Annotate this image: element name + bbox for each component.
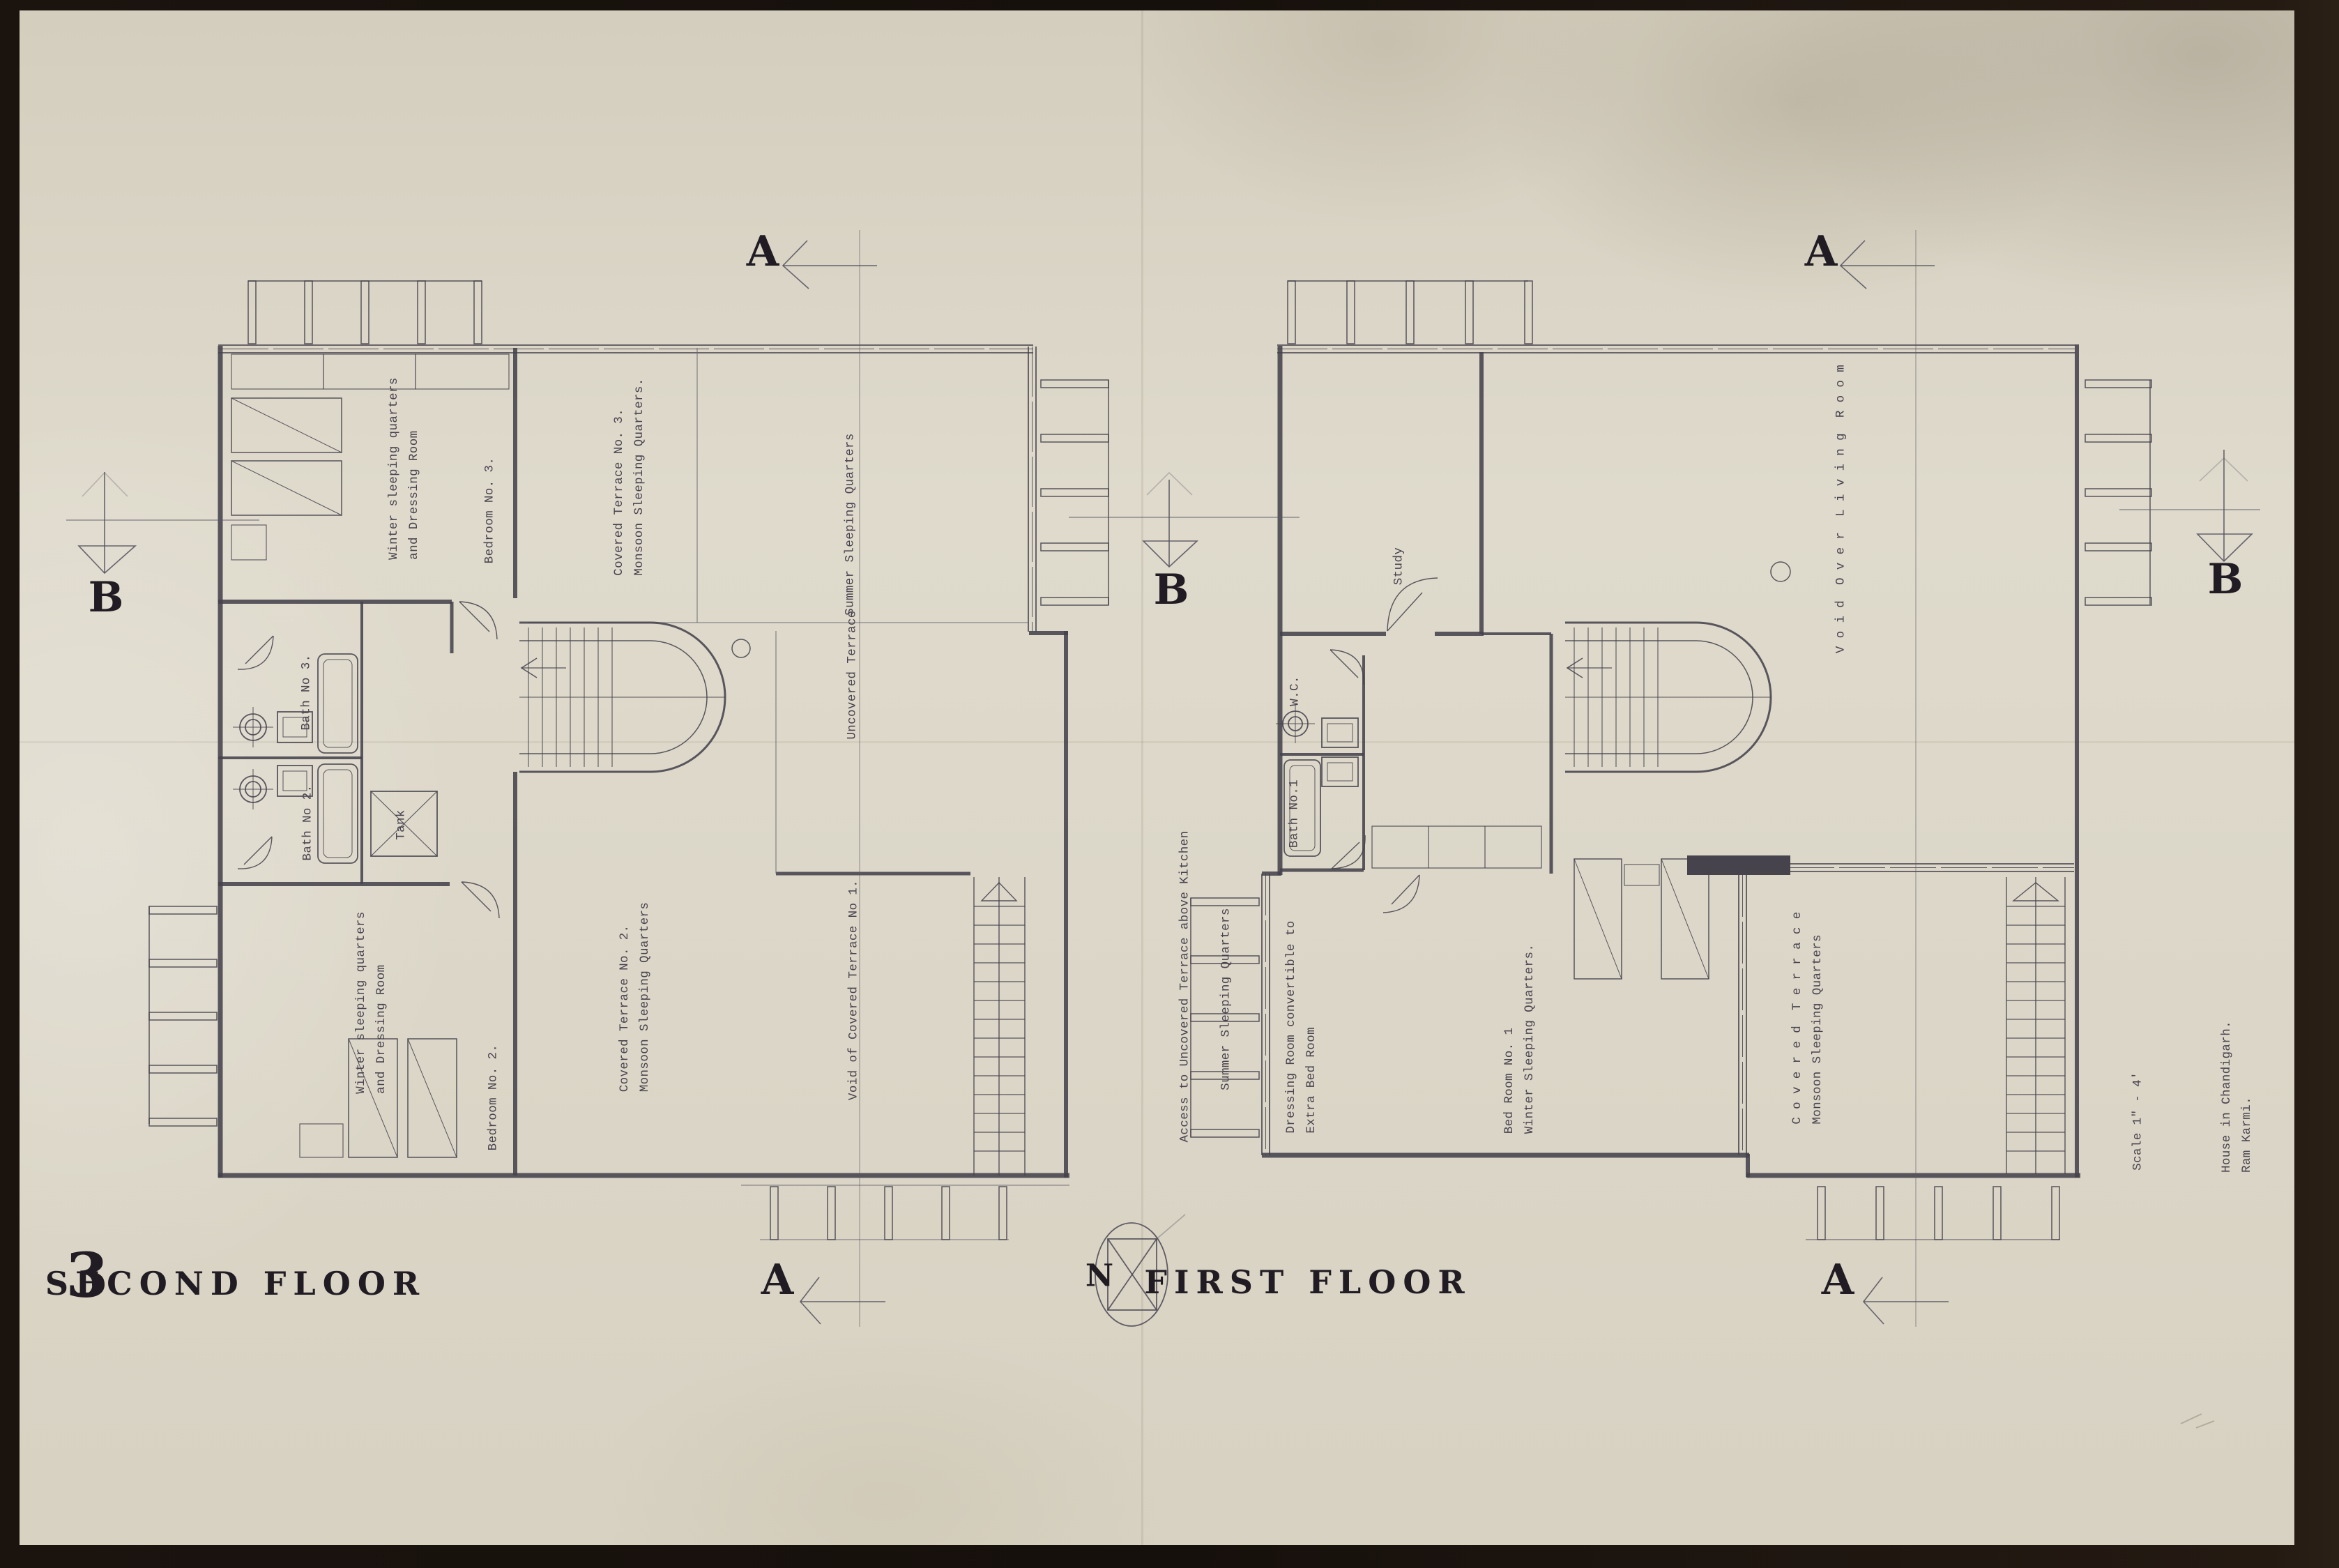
section-b-letter-middle: B (1154, 565, 1189, 614)
label-sf-tank: Tank (392, 809, 412, 840)
label-ff-wc: W.C. (1286, 676, 1306, 706)
label-ff-study: Study (1389, 547, 1410, 586)
ff-louver-right (2085, 380, 2151, 605)
ff-column (1771, 562, 1790, 581)
section-b-arrow-middle (1143, 473, 1197, 567)
section-a-arrow-top-right (1841, 241, 1935, 289)
section-a-arrow-top-left (783, 241, 877, 289)
label-ff-bath1: Bath No.1 (1285, 779, 1305, 848)
ff-straight-stair (2006, 877, 2065, 1174)
sf-louver-left (149, 906, 217, 1126)
label-ff-summer: Summer Sleeping Quarters (1217, 908, 1237, 1090)
label-ff-void-living: V o i d O v e r L i v i n g R o o m (1831, 365, 1852, 653)
ff-header-wall (1687, 855, 1790, 875)
section-b-letter-left: B (89, 573, 124, 622)
sf-balcony-bottom (770, 1187, 1007, 1240)
label-ff-access: Access to Uncovered Terrace above Kitche… (1175, 831, 1196, 1143)
sf-straight-stair (974, 877, 1025, 1175)
sf-window-wall-right (1028, 347, 1036, 632)
second-floor-title: SECOND FLOOR (45, 1265, 426, 1302)
ff-u-stair (1565, 623, 1771, 772)
ff-balcony-top (1288, 281, 1532, 344)
label-sf-bath2: Bath No 2. (298, 784, 319, 860)
label-sf-bedroom3: Bedroom No. 3. (480, 457, 501, 564)
first-floor-plan (1191, 281, 2151, 1240)
floor-plan-linework (0, 0, 2339, 1568)
scale-note: Scale 1" - 4' (2128, 1072, 2149, 1171)
label-ff-covered-terrace: C o v e r e d T e r r a c e Monsoon Slee… (1788, 911, 1828, 1124)
section-b-arrow-right (2197, 450, 2252, 561)
sf-doors (238, 602, 499, 918)
pencil-marks (2181, 1414, 2214, 1428)
label-sf-void-terrace1: Void of Covered Terrace No 1. (844, 880, 864, 1100)
sf-louver-right (1041, 380, 1108, 605)
sf-column (732, 639, 750, 657)
label-sf-uncovered-terrace: Uncovered Terrace (843, 610, 863, 739)
sf-u-stair (519, 623, 725, 772)
section-a-letter-bottom-left: A (761, 1256, 794, 1304)
ff-bedroom1-furniture (1574, 859, 1709, 979)
ff-kitchen-counters (1372, 826, 1541, 868)
ff-window-wall-wing (1262, 874, 1270, 1155)
first-floor-title: FIRST FLOOR (1144, 1263, 1471, 1301)
north-letter: N (1085, 1258, 1113, 1294)
ff-window-wall-terrace-west (1739, 875, 1746, 1155)
ff-window-wall-top (1277, 345, 2075, 353)
label-sf-covered-terrace3: Covered Terrace No. 3. Monsoon Sleeping … (609, 378, 650, 575)
section-b-arrow-left (79, 472, 135, 573)
label-sf-covered-terrace2: Covered Terrace No. 2. Monsoon Sleeping … (615, 902, 655, 1093)
label-sf-winter-upper: Winter sleeping quarters and Dressing Ro… (384, 377, 425, 560)
ff-window-wall-terrace-north (1788, 864, 2074, 871)
scanned-floor-plan-sheet: { "sheet": { "number": "3", "scale_note"… (0, 0, 2339, 1568)
label-sf-summer: Summer Sleeping Quarters (841, 433, 861, 616)
ff-balcony-bottom (1806, 1187, 2060, 1240)
section-a-arrow-bottom-right (1864, 1277, 1949, 1324)
section-a-letter-bottom-right: A (1822, 1256, 1854, 1304)
sf-balcony-top (248, 281, 482, 344)
label-sf-bath3: Bath No 3. (297, 654, 317, 730)
section-a-letter-top-right: A (1805, 227, 1838, 276)
sf-window-wall-top (218, 345, 1033, 353)
section-a-letter-top-left: A (747, 227, 779, 276)
ff-doors (1330, 578, 1438, 913)
label-ff-bedroom1: Bed Room No. 1 Winter Sleeping Quarters. (1500, 944, 1540, 1134)
section-b-letter-right: B (2208, 555, 2243, 604)
sf-bedroom3-furniture (231, 354, 509, 560)
title-block-credit: House in Chandigarh. Ram Karmi. (2217, 1021, 2257, 1173)
label-sf-winter-lower: Winter sleeping quarters and Dressing Ro… (351, 911, 392, 1094)
label-sf-bedroom2: Bedroom No. 2. (484, 1044, 504, 1151)
label-ff-dressing: Dressing Room convertible to Extra Bed R… (1281, 920, 1322, 1133)
section-a-arrow-bottom-left (800, 1277, 885, 1324)
